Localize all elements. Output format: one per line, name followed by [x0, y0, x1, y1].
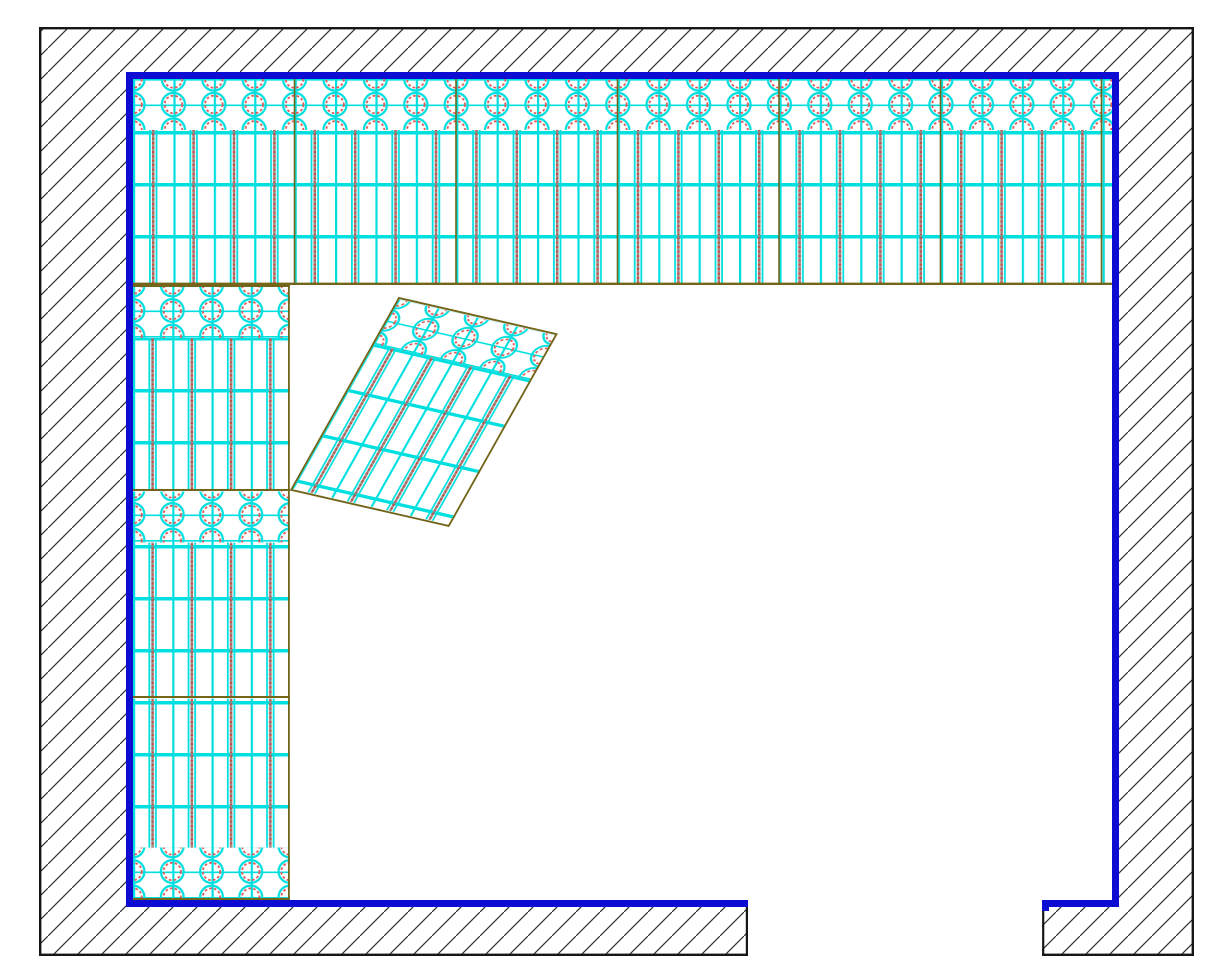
top-band-diamond-rows [133, 79, 1112, 130]
left-band-diamond-rows-3 [133, 848, 290, 899]
left-band-diamond-rows-1 [133, 287, 290, 338]
left-panel-band[interactable] [133, 285, 290, 900]
left-band-stripe-field-1 [133, 338, 290, 490]
left-band-stripe-field-3 [133, 699, 290, 848]
door-opening [748, 899, 1042, 959]
left-band-diamond-rows-2 [133, 492, 290, 543]
cad-drawing-canvas[interactable] [0, 0, 1214, 971]
left-band-stripe-field-2 [133, 543, 290, 698]
floor-plan-drawing [0, 0, 1214, 971]
top-panel-band[interactable] [133, 79, 1112, 285]
top-band-stripe-field [133, 130, 1112, 285]
